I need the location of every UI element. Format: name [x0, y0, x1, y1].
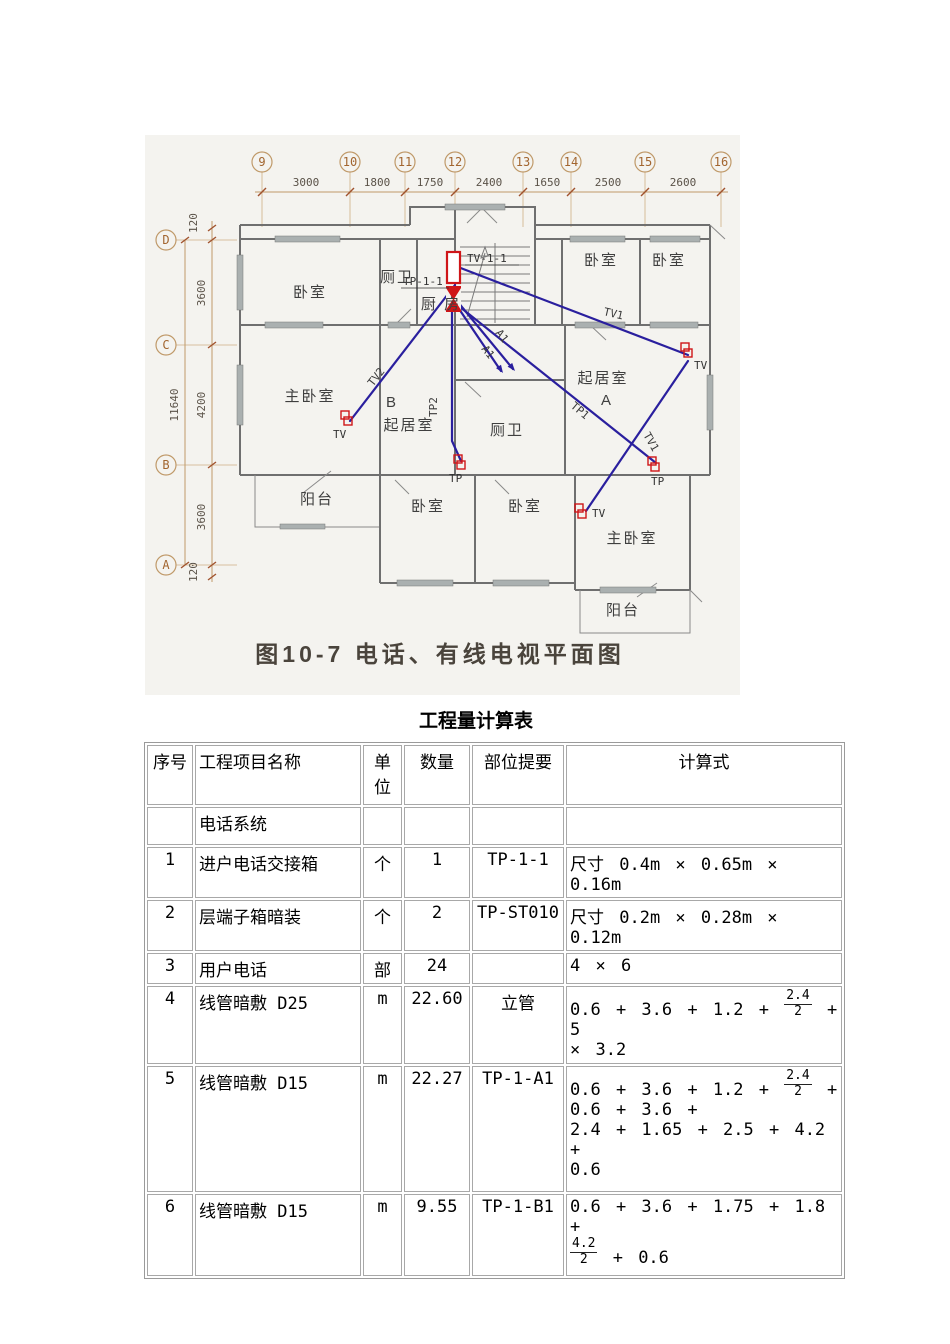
axis-label: B	[162, 458, 169, 472]
tv-outlet-symbol	[575, 504, 586, 518]
unit-a-label: A	[601, 392, 613, 409]
floor-plan-svg: 9 10 11 12 13 14 15 16 3000	[145, 135, 740, 695]
tv-outlet-label: TV	[694, 359, 708, 372]
cell-loc: TP-1-1	[472, 847, 564, 898]
cell-qty: 9.55	[404, 1194, 470, 1276]
cell-name: 线管暗敷 D15	[195, 1066, 361, 1192]
wire-label-tv1: TV1	[602, 305, 624, 322]
cell-formula: 尺寸 0.2m × 0.28m × 0.12m	[566, 900, 842, 951]
tv-outlet-label: TV	[592, 507, 606, 520]
axis-label: 16	[714, 155, 728, 169]
room-living: 起居室	[383, 417, 434, 434]
unit-b-label: B	[386, 394, 398, 411]
room-bedroom: 卧室	[293, 284, 327, 301]
cell-name: 线管暗敷 D15	[195, 1194, 361, 1276]
axis-label: 12	[448, 155, 462, 169]
cell-formula: 4 × 6	[566, 953, 842, 984]
dim-top: 2500	[595, 176, 622, 189]
table-row: 6 线管暗敷 D15 m 9.55 TP-1-B1 0.6 + 3.6 + 1.…	[147, 1194, 842, 1276]
axis-label: 10	[343, 155, 357, 169]
table-row: 1 进户电话交接箱 个 1 TP-1-1 尺寸 0.4m × 0.65m × 0…	[147, 847, 842, 898]
header-name: 工程项目名称	[195, 745, 361, 805]
table-row: 5 线管暗敷 D15 m 22.27 TP-1-A1 0.6 + 3.6 + 1…	[147, 1066, 842, 1192]
tv-distribution-box	[447, 252, 460, 283]
dim-left: 3600	[195, 280, 208, 307]
cell-formula: 尺寸 0.4m × 0.65m × 0.16m	[566, 847, 842, 898]
cell-unit: m	[363, 1194, 402, 1276]
cell-no: 6	[147, 1194, 193, 1276]
dim-left: 120	[187, 562, 200, 582]
cell-loc: TP-1-A1	[472, 1066, 564, 1192]
dim-top: 2400	[476, 176, 503, 189]
cell-name: 层端子箱暗装	[195, 900, 361, 951]
dimension-chain-left: 120 3600 4200 3600 120 11640	[168, 213, 216, 582]
cell-qty: 22.60	[404, 986, 470, 1064]
wire-label-tp2: TP2	[427, 397, 440, 417]
table-title: 工程量计算表	[144, 706, 808, 733]
cell-no: 1	[147, 847, 193, 898]
cell-name: 进户电话交接箱	[195, 847, 361, 898]
tv-outlet-symbol	[341, 411, 352, 425]
tv-outlet-label: TV	[333, 428, 347, 441]
cell-loc	[472, 807, 564, 845]
room-master-bedroom: 主卧室	[284, 388, 335, 405]
axis-label: 14	[564, 155, 578, 169]
dim-top: 3000	[293, 176, 320, 189]
wire-label-tp1: TP1	[568, 399, 592, 422]
wire-label-tv2: TV2	[365, 365, 387, 389]
axis-label: D	[162, 233, 169, 247]
dim-left-total: 11640	[168, 388, 181, 421]
cell-name: 线管暗敷 D25	[195, 986, 361, 1064]
room-bedroom: 卧室	[508, 498, 542, 515]
axis-label: 9	[258, 155, 265, 169]
cell-formula: 0.6 + 3.6 + 1.75 + 1.8 +4.22 + 0.6	[566, 1194, 842, 1276]
tp-outlet-label: TP	[449, 472, 463, 485]
tv-box-label: TV-1-1	[467, 252, 507, 265]
room-kitchen: 厨 房	[421, 296, 461, 313]
room-bedroom: 卧室	[652, 252, 686, 269]
header-unit: 单位	[363, 745, 402, 805]
room-living: 起居室	[577, 370, 628, 387]
dim-top: 1800	[364, 176, 391, 189]
cell-formula	[566, 807, 842, 845]
cell-loc: 立管	[472, 986, 564, 1064]
cell-unit: 个	[363, 847, 402, 898]
cell-no: 4	[147, 986, 193, 1064]
dim-top: 1650	[534, 176, 561, 189]
wire-label-tv1: TV1	[640, 430, 661, 454]
dim-top: 2600	[670, 176, 697, 189]
axis-label: 13	[516, 155, 530, 169]
cell-no: 3	[147, 953, 193, 984]
walls	[240, 207, 725, 633]
dim-left: 3600	[195, 504, 208, 531]
cell-loc: TP-ST010	[472, 900, 564, 951]
room-bathroom: 厕卫	[380, 269, 414, 286]
cell-name: 电话系统	[195, 807, 361, 845]
cell-qty: 22.27	[404, 1066, 470, 1192]
room-balcony: 阳台	[606, 602, 640, 619]
cell-loc: TP-1-B1	[472, 1194, 564, 1276]
figure-caption: 图10-7 电话、有线电视平面图	[255, 641, 624, 667]
floor-plan-figure: 9 10 11 12 13 14 15 16 3000	[145, 135, 740, 695]
room-bedroom: 卧室	[584, 252, 618, 269]
cell-formula: 0.6 + 3.6 + 1.2 + 2.42 + 5× 3.2	[566, 986, 842, 1064]
cell-qty: 24	[404, 953, 470, 984]
wire-label-a1: A1	[493, 327, 511, 345]
table-row: 电话系统	[147, 807, 842, 845]
axis-label: 15	[638, 155, 652, 169]
table-header-row: 序号 工程项目名称 单位 数量 部位提要 计算式	[147, 745, 842, 805]
cell-formula: 0.6 + 3.6 + 1.2 + 2.42 +0.6 + 3.6 +2.4 +…	[566, 1066, 842, 1192]
cell-unit: 个	[363, 900, 402, 951]
document-page: 9 10 11 12 13 14 15 16 3000	[0, 0, 950, 1344]
room-bedroom: 卧室	[411, 498, 445, 515]
tp-outlet-label: TP	[651, 475, 665, 488]
dimension-chain-top: 3000 1800 1750 2400 1650 2500 2600	[255, 176, 728, 196]
room-master-bedroom: 主卧室	[606, 530, 657, 547]
cell-no: 2	[147, 900, 193, 951]
cell-unit: m	[363, 1066, 402, 1192]
grid-axes-top: 9 10 11 12 13 14 15 16	[252, 152, 731, 227]
axis-label: A	[162, 558, 170, 572]
cell-no: 5	[147, 1066, 193, 1192]
header-formula: 计算式	[566, 745, 842, 805]
dim-left: 120	[187, 213, 200, 233]
axis-label: C	[162, 338, 169, 352]
header-qty: 数量	[404, 745, 470, 805]
cell-unit	[363, 807, 402, 845]
cell-qty: 2	[404, 900, 470, 951]
cell-name: 用户电话	[195, 953, 361, 984]
dim-top: 1750	[417, 176, 444, 189]
cell-qty	[404, 807, 470, 845]
dim-left: 4200	[195, 392, 208, 419]
cell-qty: 1	[404, 847, 470, 898]
table-row: 3 用户电话 部 24 4 × 6	[147, 953, 842, 984]
table-row: 4 线管暗敷 D25 m 22.60 立管 0.6 + 3.6 + 1.2 + …	[147, 986, 842, 1064]
cell-unit: m	[363, 986, 402, 1064]
header-loc: 部位提要	[472, 745, 564, 805]
cell-no	[147, 807, 193, 845]
room-balcony: 阳台	[300, 491, 334, 508]
room-bathroom: 厕卫	[490, 422, 524, 439]
table-row: 2 层端子箱暗装 个 2 TP-ST010 尺寸 0.2m × 0.28m × …	[147, 900, 842, 951]
cell-loc	[472, 953, 564, 984]
quantity-calculation-table: 序号 工程项目名称 单位 数量 部位提要 计算式 电话系统 1 进户电话交接箱 …	[144, 742, 845, 1279]
axis-label: 11	[398, 155, 412, 169]
cell-unit: 部	[363, 953, 402, 984]
header-no: 序号	[147, 745, 193, 805]
